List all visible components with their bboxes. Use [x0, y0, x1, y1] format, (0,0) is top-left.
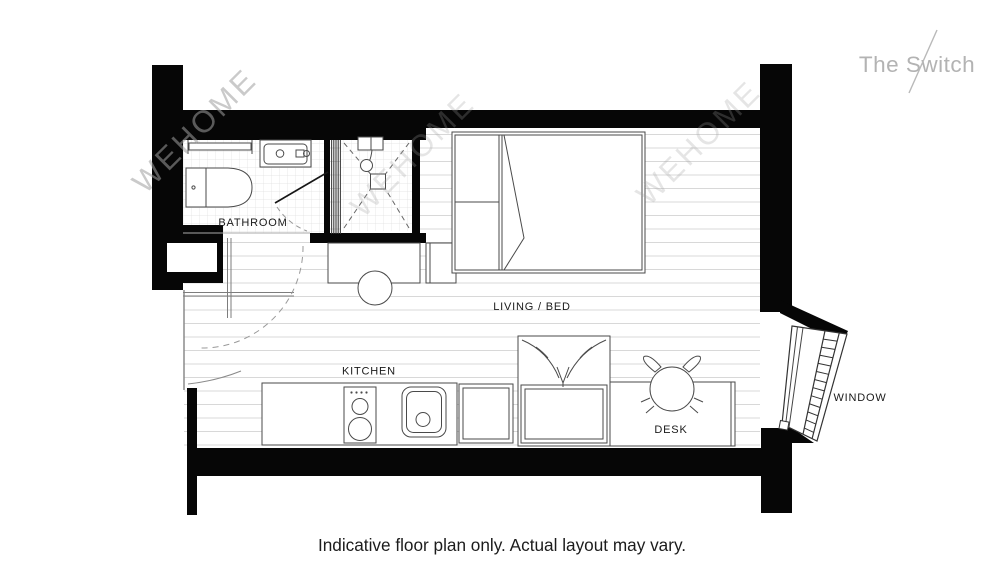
bay-window	[779, 326, 847, 441]
label-window: WINDOW	[833, 392, 886, 404]
appliance-unit	[459, 384, 513, 443]
toilet	[186, 168, 252, 207]
wardrobe	[518, 336, 610, 446]
shower-head	[358, 137, 371, 150]
caption-text: Indicative floor plan only. Actual layou…	[318, 535, 686, 555]
label-bathroom: BATHROOM	[218, 217, 287, 229]
bed	[452, 132, 645, 273]
label-desk: DESK	[654, 424, 687, 436]
label-living-bed: LIVING / BED	[493, 301, 570, 313]
floor-plan-canvas: WEHOME WEHOME WEHOME BATHROOM LIVING / B…	[0, 0, 1000, 563]
brand-logo: The Switch	[859, 30, 975, 93]
label-kitchen: KITCHEN	[342, 366, 396, 378]
hall-stool	[358, 271, 392, 305]
kitchen-units	[262, 383, 513, 445]
logo-text: The Switch	[859, 52, 975, 77]
